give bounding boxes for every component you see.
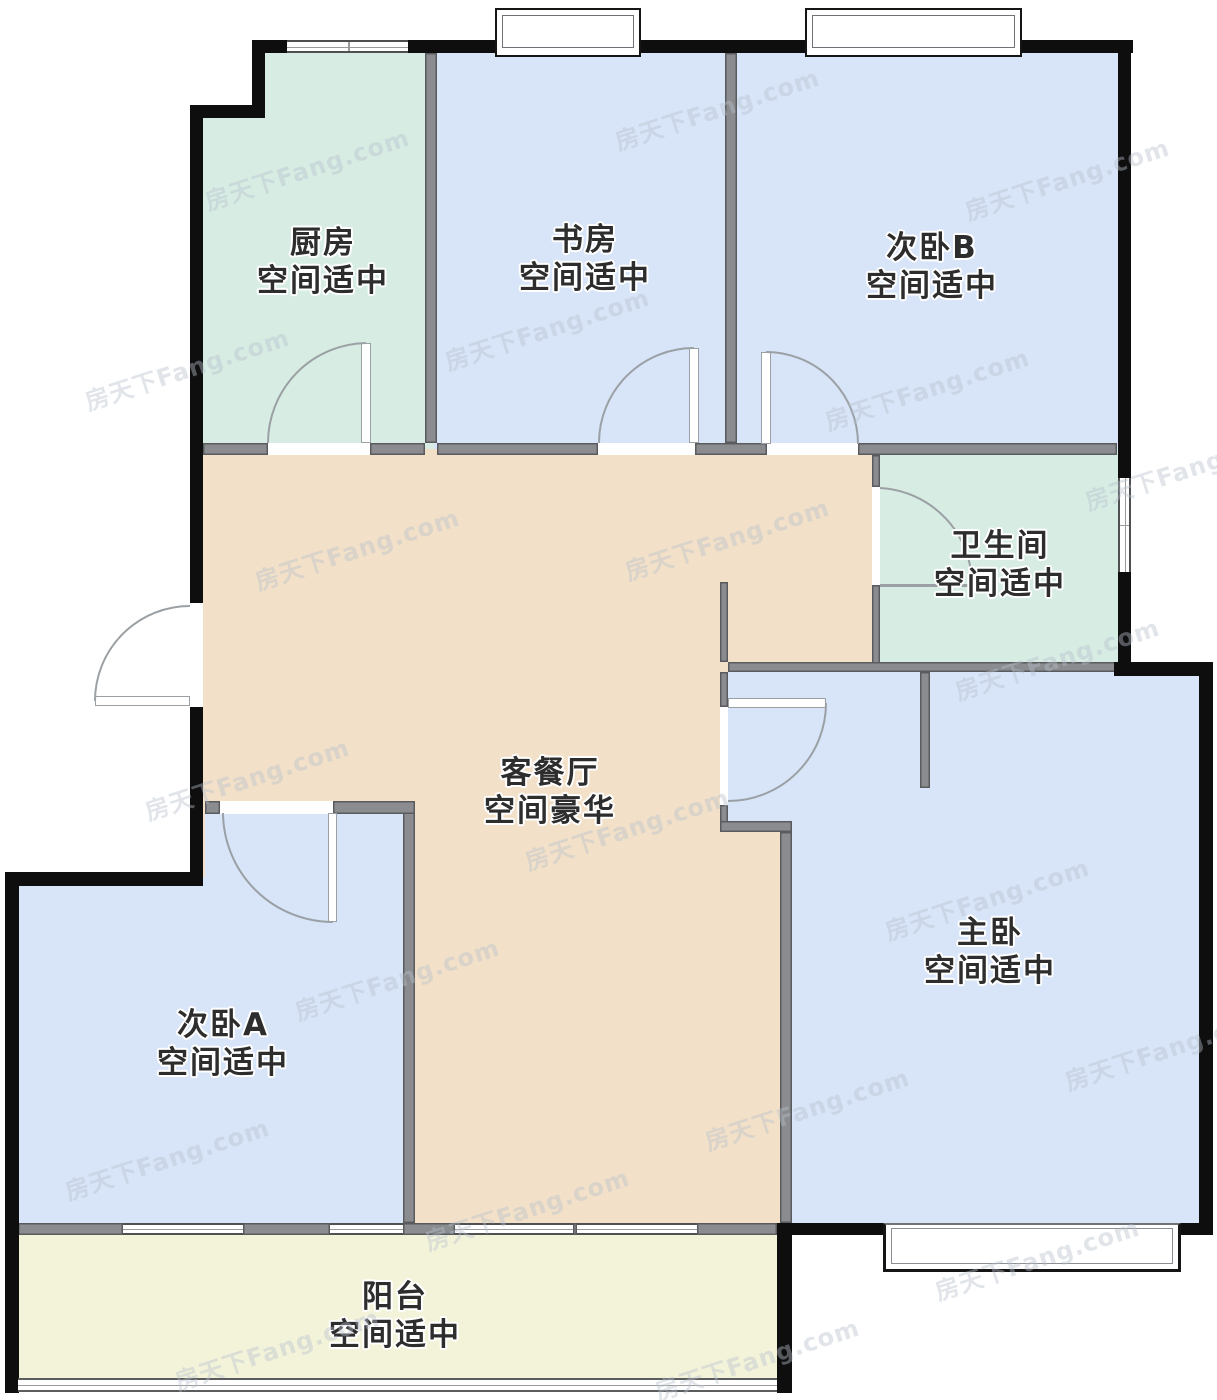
wall-master-step xyxy=(720,821,792,832)
wall-exterior-top xyxy=(408,40,495,53)
wall-bathroom-left xyxy=(872,455,880,487)
wall-exterior-left xyxy=(190,105,203,603)
entry-door-opening xyxy=(190,603,203,707)
balcony-railing xyxy=(18,1378,777,1392)
bedroom-a-floor xyxy=(205,810,412,1229)
bathroom-door-opening xyxy=(872,487,880,585)
balcony-door-window xyxy=(455,1223,573,1235)
wall-bedrooma-living xyxy=(403,806,415,1223)
bedroom-b-door-opening xyxy=(767,443,858,455)
bedroom-a-floor xyxy=(18,877,212,1229)
master-door-leaf xyxy=(728,698,826,708)
wall-segment xyxy=(243,1223,330,1235)
balcony-floor xyxy=(18,1229,779,1390)
study-window xyxy=(495,8,641,57)
wall-exterior-right xyxy=(1118,40,1131,478)
wall-master-left xyxy=(720,672,728,707)
bedroom-a-door-leaf xyxy=(328,813,337,922)
master-bay-window xyxy=(883,1223,1181,1272)
wall-exterior-right xyxy=(1199,662,1213,1235)
bathroom-floor xyxy=(872,449,1122,668)
bathroom-door-leaf xyxy=(880,584,972,587)
bedroom-b-window xyxy=(805,8,1022,57)
bathroom-window xyxy=(1118,478,1131,572)
living-dining-floor xyxy=(728,832,780,1229)
wall-segment xyxy=(203,443,268,455)
wall-master-niche xyxy=(920,672,930,788)
bedroom-a-window xyxy=(123,1223,243,1235)
wall-exterior-left xyxy=(5,872,19,1393)
living-dining-floor xyxy=(197,449,872,672)
wall-exterior-top xyxy=(1022,40,1133,53)
wall-segment xyxy=(18,1223,123,1235)
master-door-opening xyxy=(720,707,728,805)
bedroom-b-door-leaf xyxy=(761,352,771,444)
wall-exterior-top xyxy=(641,40,805,53)
bedroom-b-floor xyxy=(737,46,1127,449)
wall-segment xyxy=(437,443,598,455)
entry-door-leaf xyxy=(95,696,190,706)
bedroom-a-door-opening xyxy=(220,801,333,814)
wall-bathroom-left xyxy=(872,585,880,668)
exterior-notch xyxy=(190,40,252,106)
wall-segment xyxy=(697,1223,777,1235)
wall-segment xyxy=(695,443,767,455)
wall-hall-stub xyxy=(720,582,728,662)
kitchen-window xyxy=(287,40,408,53)
study-door-leaf xyxy=(689,348,699,443)
wall-segment xyxy=(858,443,1117,455)
wall-exterior-right xyxy=(1118,572,1131,664)
balcony-door-window xyxy=(577,1223,697,1235)
wall-bathroom-bottom xyxy=(728,662,1117,672)
wall-exterior-bottom xyxy=(1181,1223,1213,1235)
wall-kitchen-study xyxy=(425,53,437,443)
wall-study-bedroom-b xyxy=(725,53,737,443)
bedroom-a-window xyxy=(330,1223,403,1235)
wall-segment xyxy=(370,443,425,455)
wall-segment xyxy=(403,1223,455,1235)
wall-exterior-bottom xyxy=(777,1223,883,1235)
wall-master-step xyxy=(780,832,792,1223)
kitchen-door-opening xyxy=(268,443,370,455)
kitchen-door-leaf xyxy=(361,343,371,443)
master-bedroom-floor xyxy=(728,662,1207,1235)
wall-balcony-right xyxy=(777,1229,792,1393)
floor-plan: 厨房 空间适中 书房 空间适中 次卧B 空间适中 卫生间 空间适中 客餐厅 空间… xyxy=(0,0,1217,1400)
wall-exterior-left xyxy=(190,707,203,873)
wall-exterior-step xyxy=(5,872,203,886)
wall-bedrooma-top xyxy=(205,801,220,814)
wall-bedrooma-top xyxy=(333,801,415,814)
study-door-opening xyxy=(598,443,695,455)
